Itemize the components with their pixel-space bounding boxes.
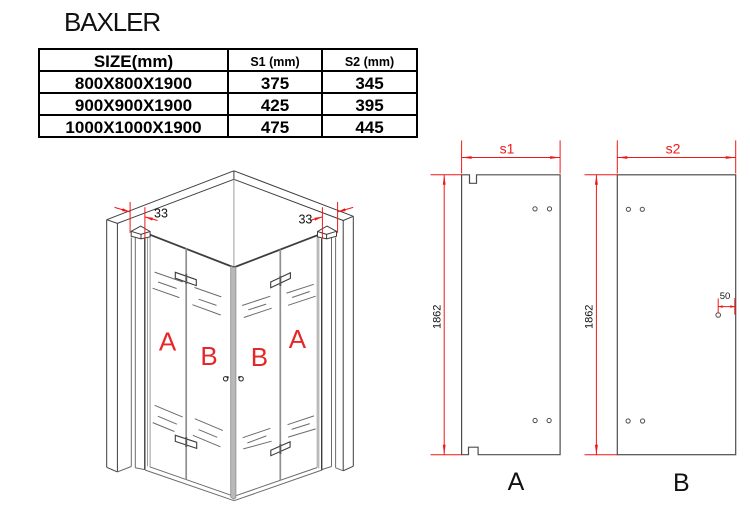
- svg-text:A: A: [159, 327, 177, 357]
- svg-text:A: A: [289, 324, 307, 354]
- svg-text:s2: s2: [666, 141, 681, 157]
- svg-text:A: A: [508, 468, 525, 496]
- svg-text:33: 33: [298, 212, 312, 226]
- svg-text:B: B: [251, 342, 268, 372]
- svg-text:s1: s1: [500, 141, 515, 157]
- svg-text:B: B: [200, 341, 217, 371]
- svg-text:50: 50: [720, 291, 731, 302]
- svg-text:1862: 1862: [584, 305, 596, 329]
- svg-text:33: 33: [154, 207, 168, 221]
- svg-text:B: B: [673, 469, 690, 497]
- svg-text:1862: 1862: [432, 305, 444, 329]
